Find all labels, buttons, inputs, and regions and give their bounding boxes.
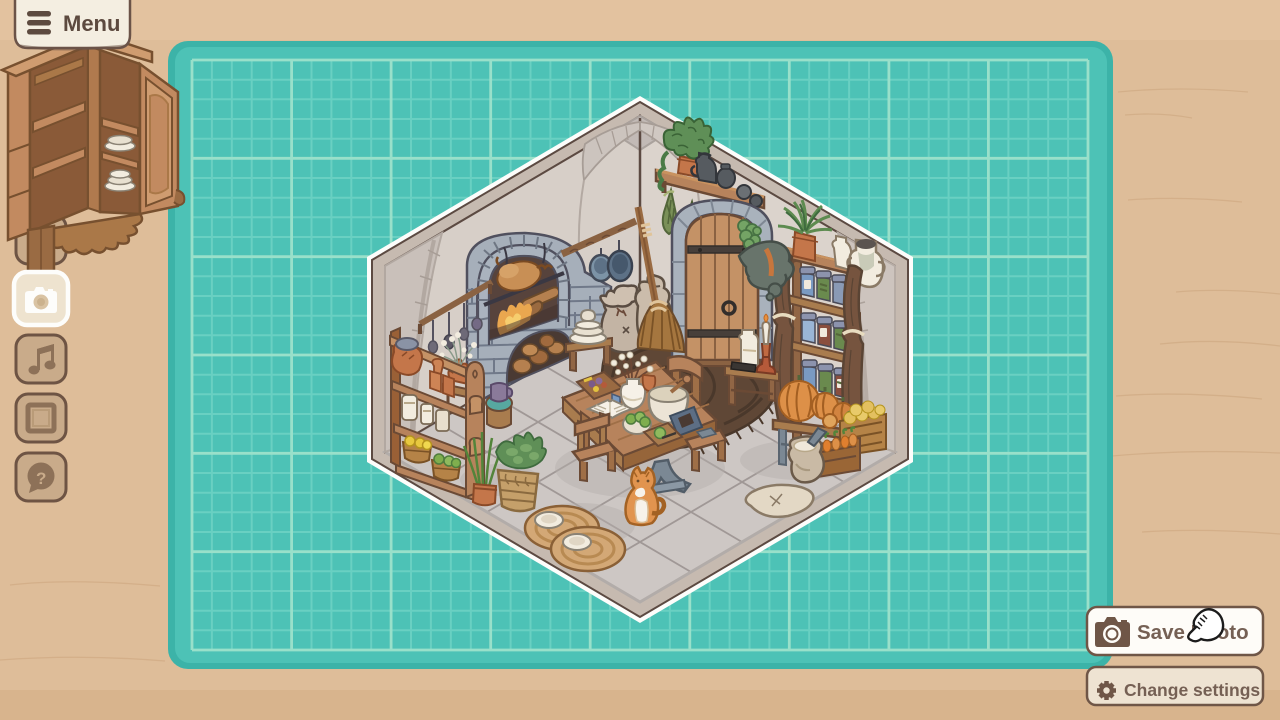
svg-text:Change settings: Change settings xyxy=(1124,680,1260,700)
svg-text:Menu: Menu xyxy=(63,11,120,36)
svg-text:?: ? xyxy=(36,469,46,488)
